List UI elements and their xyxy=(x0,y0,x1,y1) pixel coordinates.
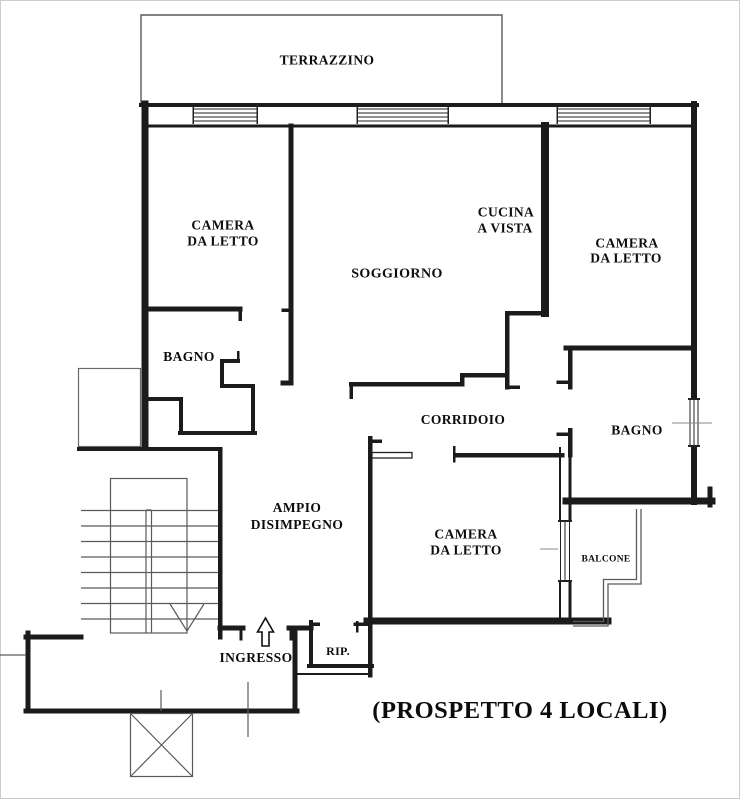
label-soggiorno: SOGGIORNO xyxy=(351,267,443,282)
label-disimpegno-2: DISIMPEGNO xyxy=(251,517,344,532)
label-camera-bottom-1: CAMERA xyxy=(434,527,497,542)
label-disimpegno-1: AMPIO xyxy=(273,500,322,515)
label-camera-top-left-2: DA LETTO xyxy=(187,234,259,249)
label-bagno-left: BAGNO xyxy=(163,349,215,364)
floor-plan-page: TERRAZZINO CAMERA DA LETTO SOGGIORNO CUC… xyxy=(0,0,740,799)
label-terrazzino: TERRAZZINO xyxy=(280,53,375,68)
label-camera-top-right-2: DA LETTO xyxy=(590,251,662,266)
label-cucina-1: CUCINA xyxy=(478,205,534,220)
label-bagno-right: BAGNO xyxy=(611,423,663,438)
label-camera-top-right-1: CAMERA xyxy=(595,236,658,251)
door-leaf-camera-bottom xyxy=(372,453,412,459)
page-border xyxy=(1,1,740,799)
label-ingresso: INGRESSO xyxy=(220,650,293,665)
label-balcone: BALCONE xyxy=(581,555,630,565)
label-corridoio: CORRIDOIO xyxy=(421,412,506,427)
label-camera-top-left-1: CAMERA xyxy=(191,218,254,233)
plan-title: (PROSPETTO 4 LOCALI) xyxy=(372,697,667,724)
label-ripostiglio: RIP. xyxy=(326,644,350,658)
label-camera-bottom-2: DA LETTO xyxy=(430,543,502,558)
label-cucina-2: A VISTA xyxy=(477,221,532,236)
floor-plan-svg: TERRAZZINO CAMERA DA LETTO SOGGIORNO CUC… xyxy=(0,0,740,799)
